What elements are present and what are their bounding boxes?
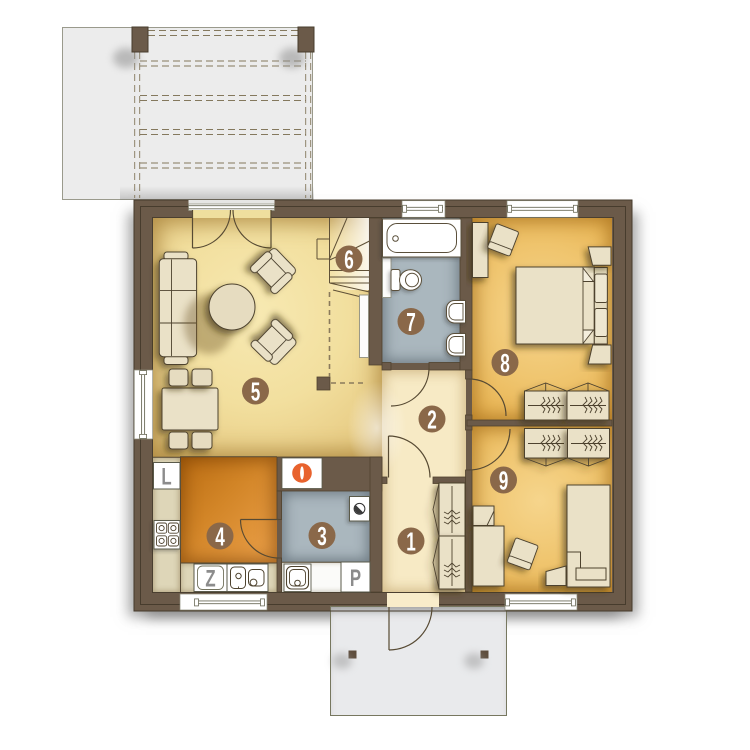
svg-text:Z: Z [205, 566, 216, 593]
svg-text:P: P [350, 565, 361, 592]
svg-text:1: 1 [406, 527, 416, 557]
svg-text:9: 9 [499, 466, 509, 496]
svg-text:6: 6 [344, 245, 354, 275]
svg-text:8: 8 [500, 348, 510, 378]
svg-text:3: 3 [317, 521, 327, 551]
svg-text:4: 4 [215, 522, 225, 552]
svg-text:L: L [161, 464, 172, 491]
svg-text:2: 2 [427, 405, 437, 435]
svg-text:5: 5 [251, 377, 261, 407]
svg-text:7: 7 [406, 307, 416, 337]
